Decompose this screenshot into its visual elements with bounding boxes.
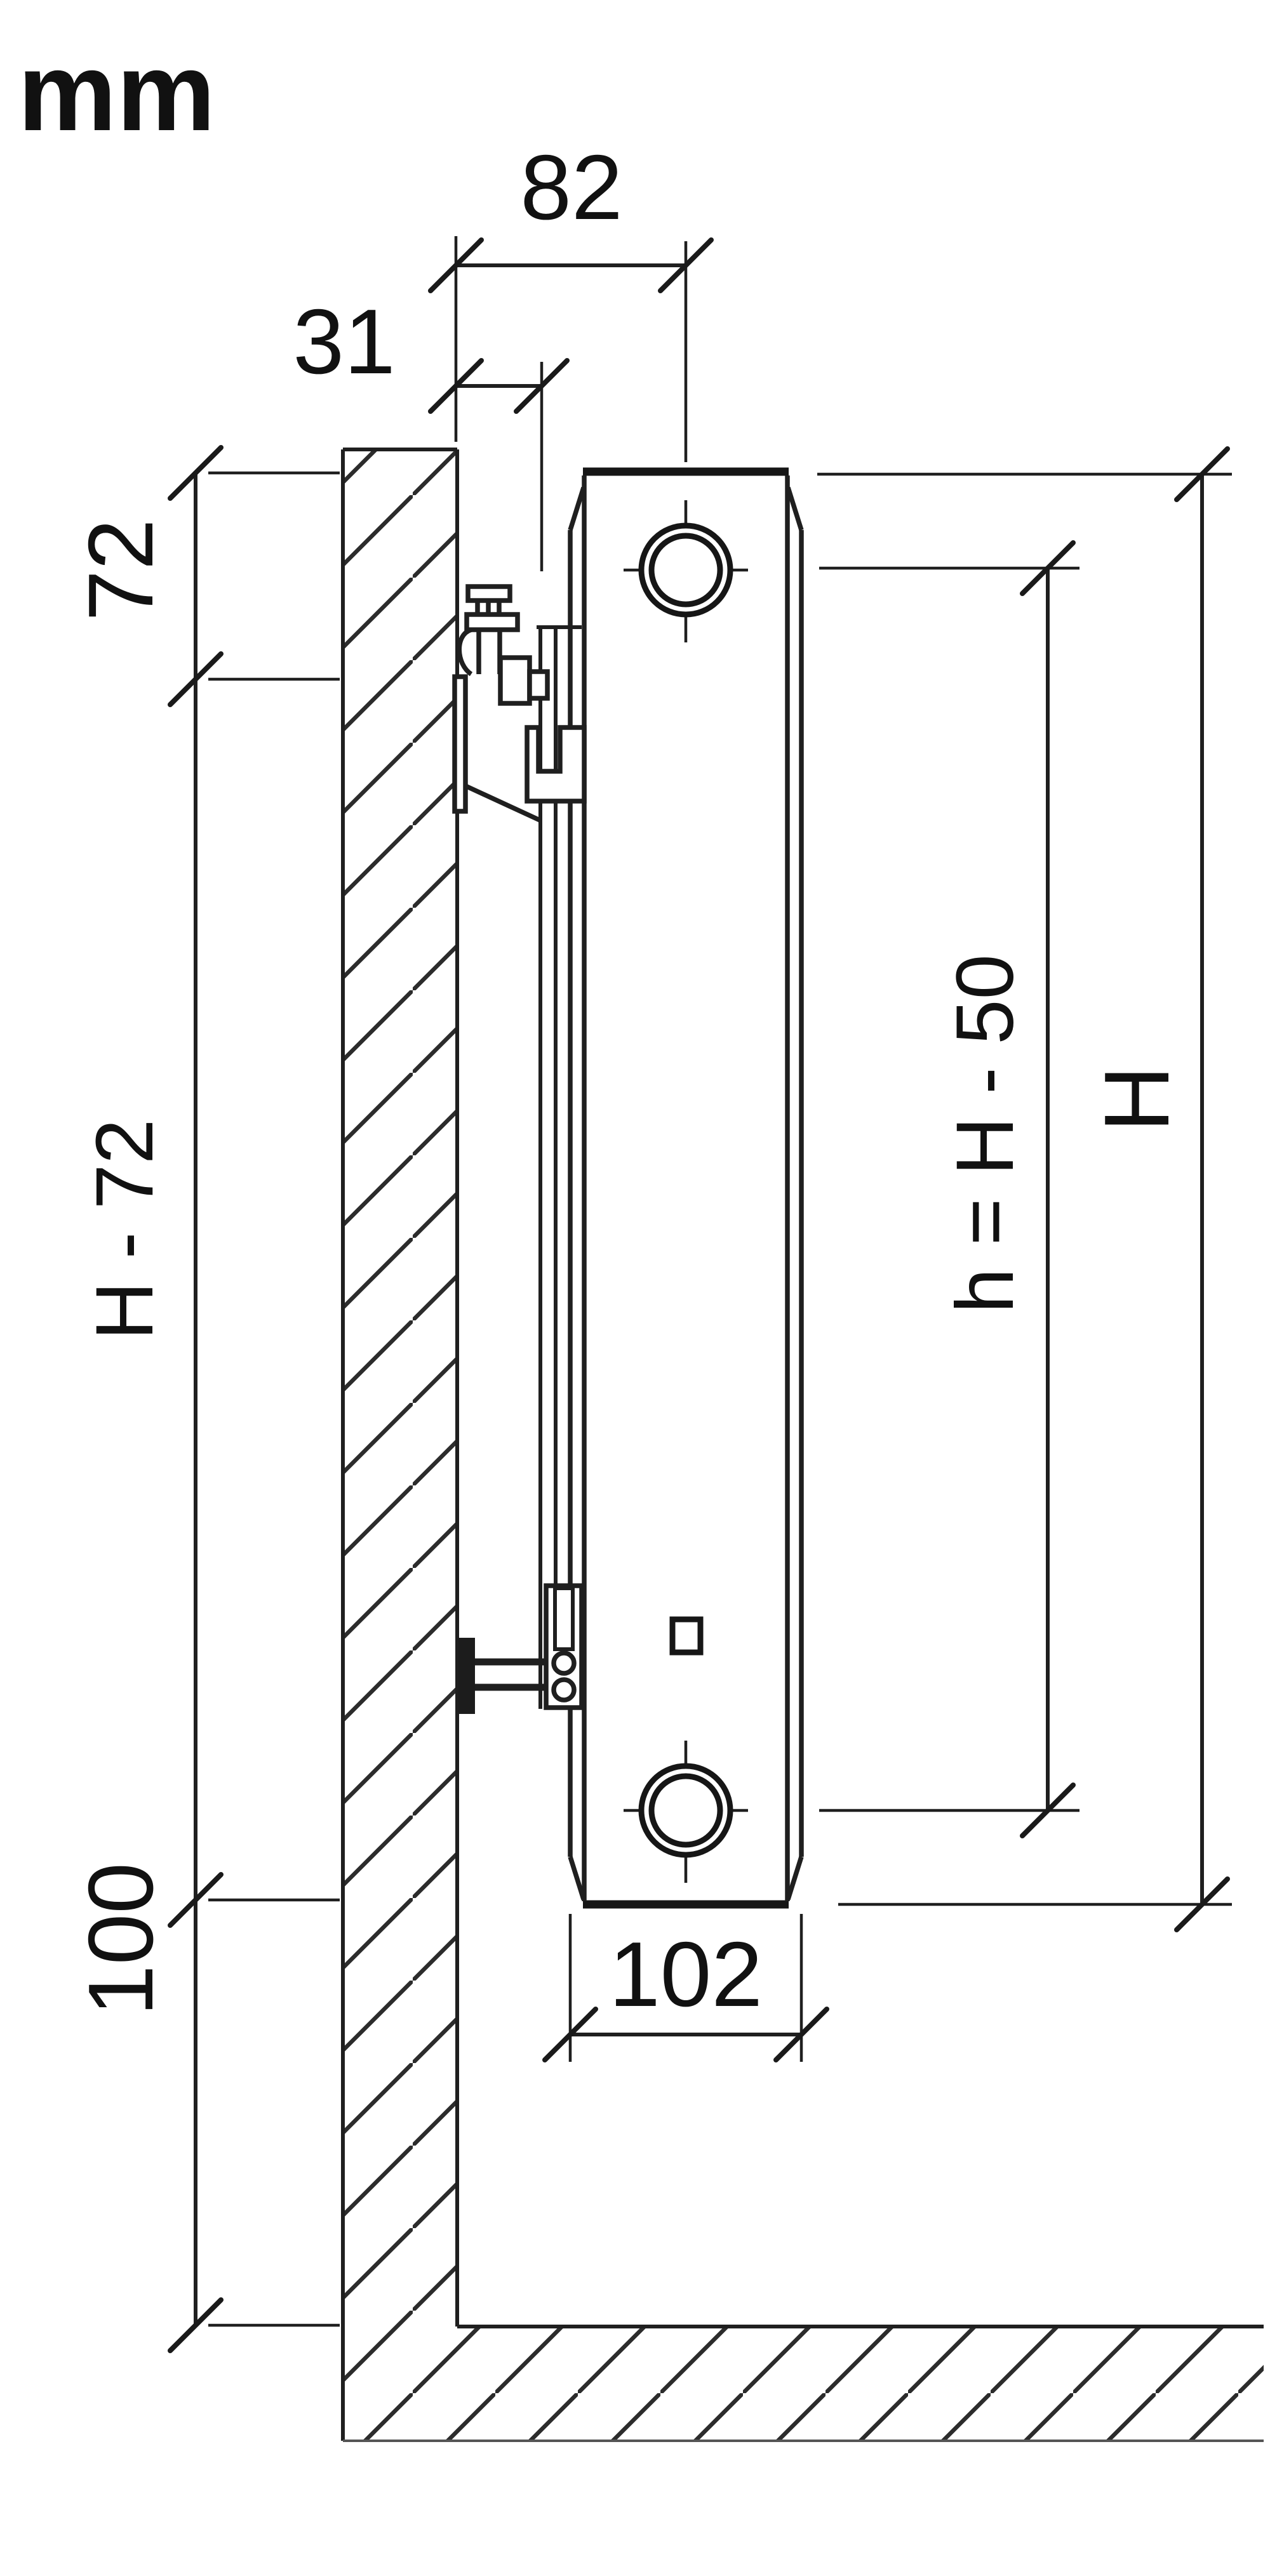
drain-plug-square: [672, 1619, 700, 1652]
dimension-102: 102: [545, 1914, 827, 2062]
bottom-bracket: [458, 1586, 582, 1714]
bottom-connection-port: [624, 1741, 748, 1883]
dimension-82: 82: [431, 136, 711, 462]
radiator-left-top-chamfer: [570, 488, 584, 530]
dim-label-100: 100: [69, 1862, 172, 2016]
floor-hatch: [457, 2327, 1264, 2441]
wall-section: [343, 449, 457, 2441]
valve-flange: [467, 614, 518, 630]
technical-drawing: 82 31 72 H - 72 100 h = H - 50: [0, 0, 1270, 2576]
radiator-right-bottom-chamfer: [788, 1857, 801, 1899]
top-port-inner-circle: [652, 536, 720, 604]
dim-label-H-minus-72: H - 72: [79, 1119, 170, 1341]
unit-label: mm: [18, 30, 215, 154]
dim-label-102: 102: [609, 1923, 763, 2026]
wall-hatch: [343, 449, 457, 2441]
top-connection-port: [624, 500, 748, 642]
dim-label-31: 31: [293, 290, 395, 393]
bottom-port-inner-circle: [652, 1776, 720, 1845]
valve-outlet-stub: [530, 672, 547, 698]
radiator-right-top-chamfer: [788, 488, 801, 530]
dim-label-h: h = H - 50: [940, 954, 1031, 1313]
radiator-left-bottom-chamfer: [570, 1857, 584, 1899]
bracket-wall-plate: [455, 677, 465, 811]
dimension-h: h = H - 50: [819, 543, 1079, 1836]
left-dimension-chain: 72 H - 72 100: [69, 448, 340, 2351]
bottom-anchor-plate: [458, 1638, 475, 1714]
dim-label-H: H: [1085, 1066, 1188, 1132]
dim-label-82: 82: [520, 136, 622, 239]
floor-section: [343, 2327, 1264, 2441]
radiator: [570, 472, 801, 1904]
valve-cap: [468, 587, 510, 601]
valve-body-curve: [459, 630, 471, 674]
drawing-page: 82 31 72 H - 72 100 h = H - 50: [0, 0, 1270, 2576]
valve-union-nut: [500, 658, 530, 703]
valve-assembly: [459, 587, 547, 703]
dim-label-72: 72: [69, 519, 172, 621]
